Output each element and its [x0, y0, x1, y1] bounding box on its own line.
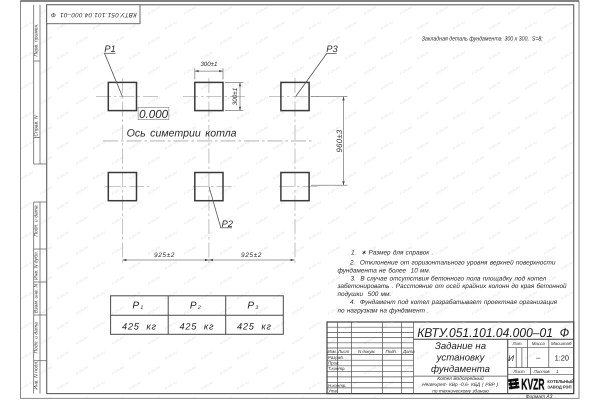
- svg-text:Взам. инв. N: Взам. инв. N: [33, 284, 39, 314]
- svg-text:960±3: 960±3: [335, 129, 344, 152]
- svg-text:Дата: Дата: [402, 349, 415, 354]
- svg-text:Справ. N: Справ. N: [33, 115, 39, 136]
- svg-text:Инв. N подл.: Инв. N подл.: [33, 360, 39, 389]
- svg-text:Лист: Лист: [512, 369, 525, 374]
- svg-text:Закладная деталь фундамента 3: Закладная деталь фундамента 300 х 300, S…: [422, 36, 543, 43]
- svg-text:И: И: [508, 354, 514, 363]
- svg-text:установку: установку: [436, 352, 486, 363]
- svg-text:Ось симетрии котла: Ось симетрии котла: [127, 128, 237, 140]
- svg-text:925±2: 925±2: [154, 252, 175, 259]
- svg-text:Подп. и дата: Подп. и дата: [33, 322, 39, 354]
- svg-text:Подп. и дата: Подп. и дата: [33, 205, 39, 237]
- svg-text:по техническому зданию: по техническому зданию: [432, 389, 489, 395]
- svg-text:Н.контр.: Н.контр.: [328, 383, 347, 388]
- svg-text:Формат А3: Формат А3: [526, 394, 553, 400]
- svg-text:Р1: Р1: [104, 43, 115, 54]
- svg-text:425 кг: 425 кг: [179, 322, 214, 332]
- svg-text:Масштаб: Масштаб: [551, 341, 572, 346]
- svg-text:ЗАВОД РЭП: ЗАВОД РЭП: [547, 385, 571, 390]
- svg-text:1:20: 1:20: [555, 353, 569, 362]
- svg-text:КВТУ.051.101.04.000–01 Ф: КВТУ.051.101.04.000–01 Ф: [417, 325, 569, 340]
- svg-text:фундамента: фундамента: [431, 364, 490, 375]
- svg-text:N докум.: N докум.: [358, 349, 376, 354]
- svg-text:2. Отклонение от горизонтальн: 2. Отклонение от горизонтального уровня …: [349, 259, 556, 266]
- svg-text:фундамента не более 10 мм.: фундамента не более 10 мм.: [338, 267, 431, 274]
- svg-text:925±2: 925±2: [241, 252, 262, 259]
- svg-text:Пров.: Пров.: [328, 361, 340, 366]
- svg-text:Лит.: Лит.: [511, 341, 522, 346]
- svg-text:Разраб.: Разраб.: [328, 355, 344, 360]
- svg-text:Изм.: Изм.: [328, 349, 337, 354]
- svg-text:Перв. примен.: Перв. примен.: [33, 23, 39, 56]
- svg-text:0.000: 0.000: [139, 108, 169, 121]
- svg-text:425 кг: 425 кг: [122, 322, 157, 332]
- svg-text:Т.контр.: Т.контр.: [328, 366, 346, 371]
- svg-text:300±1: 300±1: [200, 61, 217, 68]
- svg-text:КОТЕЛЬНЫЙ: КОТЕЛЬНЫЙ: [547, 379, 574, 384]
- svg-text:подушки 500 мм.: подушки 500 мм.: [338, 291, 392, 298]
- svg-text:Р3: Р3: [326, 43, 338, 54]
- svg-text:Задание на: Задание на: [435, 341, 486, 352]
- svg-text:300±1: 300±1: [232, 87, 239, 105]
- svg-text:Утв.: Утв.: [328, 388, 338, 393]
- svg-text:KVZR: KVZR: [521, 377, 544, 394]
- svg-text:Лист: Лист: [337, 349, 350, 354]
- svg-text:Heatexpert- КВр -0,6- КБД ( РВ: Heatexpert- КВр -0,6- КБД ( РВР ): [422, 382, 498, 388]
- svg-text:Масса: Масса: [532, 341, 546, 346]
- svg-text:Листов: Листов: [533, 369, 551, 374]
- svg-text:Инв. N дубл.: Инв. N дубл.: [33, 251, 39, 280]
- svg-text:1. ∗ Размер для справок .: 1. ∗ Размер для справок .: [351, 249, 433, 256]
- svg-text:Котел Водогрейный: Котел Водогрейный: [437, 376, 484, 382]
- svg-text:3. В случае отсутствия бетонн: 3. В случае отсутствия бетонного пола пл…: [351, 275, 547, 282]
- svg-text:Подп.: Подп.: [386, 349, 398, 354]
- svg-text:–: –: [535, 353, 541, 362]
- svg-text:забетонировать . Расстояние от: забетонировать . Расстояние от осей край…: [337, 283, 568, 290]
- svg-text:425 кг: 425 кг: [237, 322, 272, 332]
- svg-text:Р2: Р2: [221, 218, 233, 229]
- svg-text:по нагрузкам на фундамент .: по нагрузкам на фундамент .: [338, 308, 429, 315]
- svg-text:4. Фундамент под котел разраб: 4. Фундамент под котел разрабатывает про…: [350, 299, 558, 306]
- svg-text:КВТУ.051.101.04.000–01 Ф: КВТУ.051.101.04.000–01 Ф: [51, 11, 137, 18]
